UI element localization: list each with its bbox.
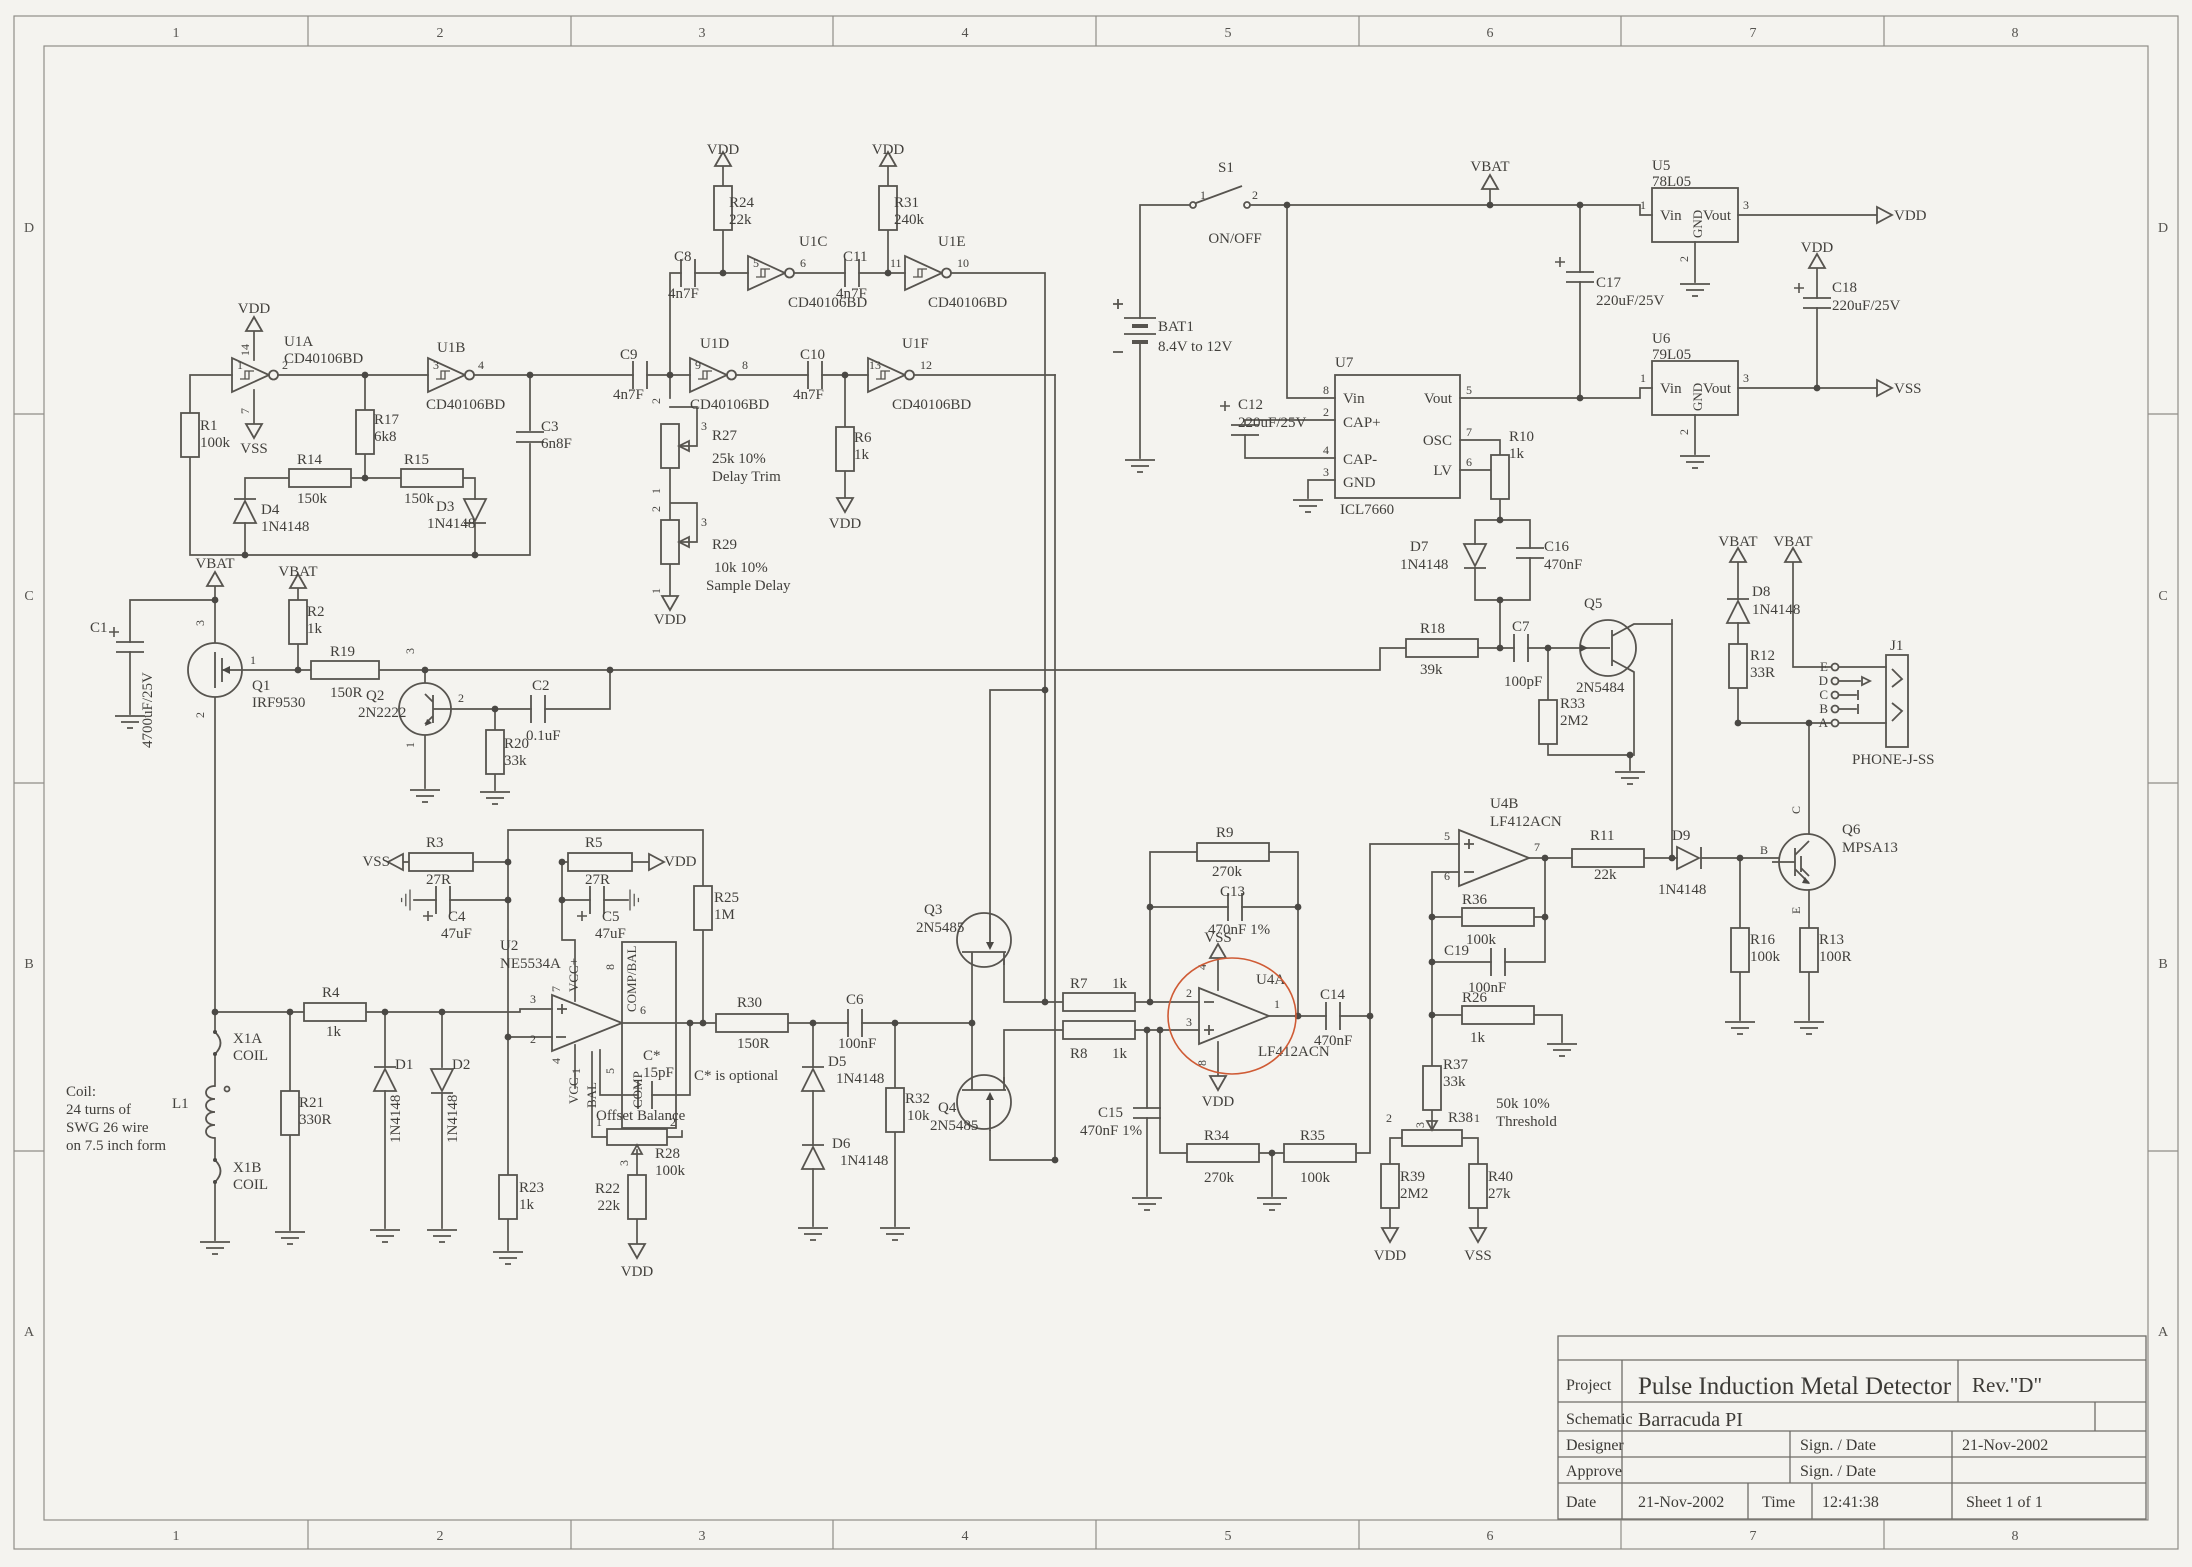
label-C16-val: 470nF: [1544, 557, 1582, 573]
label-U2-bal: BAL: [584, 1082, 599, 1108]
label-D3-ref: D3: [436, 499, 454, 515]
ground: [1125, 460, 1155, 472]
grid-row-right-C: C: [2158, 589, 2167, 604]
label-coil-note1: Coil:: [66, 1084, 96, 1100]
label-R30-ref: R30: [737, 995, 762, 1011]
transistor-Q1: [188, 643, 242, 697]
vss-arrow: [1210, 944, 1226, 958]
resistor-R15: [401, 469, 463, 487]
label-C19-ref: C19: [1444, 943, 1469, 959]
label-R2-ref: R2: [307, 604, 325, 620]
label-U2-vccminus: VCC-: [566, 1073, 581, 1104]
ground: [1680, 456, 1710, 468]
label-U7-capm: CAP-: [1343, 452, 1377, 468]
label-L1-ref: L1: [172, 1096, 189, 1112]
label-D3-val: 1N4148: [427, 516, 475, 532]
resistor-R21: [281, 1091, 299, 1135]
label-C11-val: 4n7F: [836, 286, 867, 302]
label-D7-val: 1N4148: [1400, 557, 1448, 573]
label-C9-val: 4n7F: [613, 387, 644, 403]
label-C1-val: 4700uF/25V: [140, 672, 156, 748]
label-D1-ref: D1: [395, 1057, 413, 1073]
label-R5-ref: R5: [585, 835, 603, 851]
label-J1-pinD: D: [1819, 673, 1828, 688]
label-U1E-pin11: 11: [890, 256, 902, 270]
ground: [1680, 284, 1710, 296]
vdd-arrow: [662, 596, 678, 610]
label-C7-ref: C7: [1512, 619, 1530, 635]
capacitor-C16: [1516, 548, 1544, 558]
label-R5-vdd: VDD: [664, 854, 697, 870]
plus-C4: [423, 911, 433, 921]
label-X1A-val: COIL: [233, 1048, 268, 1064]
capacitor-C7: [1514, 634, 1528, 662]
label-U1D-ref: U1D: [700, 336, 729, 352]
grid-col-top-5: 5: [1225, 26, 1232, 41]
capacitor-C6: [848, 1009, 862, 1037]
ground: [370, 1230, 400, 1242]
ground: [410, 790, 440, 802]
label-U5-val: 78L05: [1652, 174, 1691, 190]
label-C1-ref: C1: [90, 620, 108, 636]
ground: [1257, 1198, 1287, 1210]
resistor-R3: [409, 853, 473, 871]
grid-row-left-C: C: [24, 589, 33, 604]
label-R15-ref: R15: [404, 452, 429, 468]
label-R22-vdd: VDD: [621, 1264, 654, 1280]
battery-BAT1: [1113, 299, 1156, 352]
label-U1A-vss: VSS: [240, 441, 268, 457]
label-BAT1-val: 8.4V to 12V: [1158, 339, 1232, 355]
label-R23-ref: R23: [519, 1180, 544, 1196]
capacitor-C18: [1803, 298, 1831, 308]
label-D8-vbat: VBAT: [1718, 534, 1757, 550]
label-U6-pin2: 2: [1677, 429, 1691, 435]
label-R25-val: 1M: [714, 907, 735, 923]
vdd-arrow: [246, 317, 262, 331]
label-R33-val: 2M2: [1560, 713, 1588, 729]
label-Q2-pin2: 2: [458, 691, 464, 705]
resistor-R33: [1539, 700, 1557, 744]
label-D2-ref: D2: [452, 1057, 470, 1073]
grid-col-top-4: 4: [962, 26, 969, 41]
diode-D2: [431, 1069, 453, 1093]
designer-label: Designer: [1566, 1437, 1624, 1454]
label-coil-note2: 24 turns of: [66, 1102, 131, 1118]
label-U4A-pin3: 3: [1186, 1015, 1192, 1029]
grid-col-bottom-6: 6: [1487, 1529, 1494, 1544]
label-R17-val: 6k8: [374, 429, 397, 445]
label-U1F-val: CD40106BD: [892, 397, 971, 413]
grid-labels: 1122334455667788DDCCBBAA: [24, 26, 2169, 1544]
label-U1A-vdd: VDD: [238, 301, 271, 317]
label-R9-ref: R9: [1216, 825, 1234, 841]
resistor-R37: [1423, 1066, 1441, 1110]
label-R34-ref: R34: [1204, 1128, 1230, 1144]
capacitor-C10: [808, 361, 822, 389]
inductor-L1: [206, 1086, 230, 1138]
label-U5-pin2: 2: [1677, 256, 1691, 262]
label-C12-ref: C12: [1238, 397, 1263, 413]
label-D5-ref: D5: [828, 1054, 846, 1070]
label-U1C-ref: U1C: [799, 234, 827, 250]
label-C8-val: 4n7F: [668, 286, 699, 302]
label-U1D-pin8: 8: [742, 358, 748, 372]
resistor-R39: [1381, 1164, 1399, 1208]
label-R27-ref: R27: [712, 428, 738, 444]
label-R11-val: 22k: [1594, 867, 1617, 883]
label-U2-pin1: 1: [569, 1068, 583, 1074]
diode-D7: [1464, 544, 1486, 568]
label-U7-lv: LV: [1433, 463, 1452, 479]
wires-sampling: [813, 690, 1199, 1226]
label-R14-val: 150k: [297, 491, 328, 507]
label-U7-val: ICL7660: [1340, 502, 1394, 518]
resistor-R14: [289, 469, 351, 487]
label-U4A-vss: VSS: [1204, 930, 1232, 946]
vbat-arrow: [207, 572, 223, 586]
label-C12-val: 220uF/25V: [1238, 415, 1307, 431]
label-R5-val: 27R: [585, 872, 610, 888]
label-R19-ref: R19: [330, 644, 355, 660]
resistor-R34: [1187, 1144, 1259, 1162]
label-R31-val: 240k: [894, 212, 925, 228]
project-label: Project: [1566, 1377, 1612, 1394]
label-Q5-val: 2N5484: [1576, 680, 1625, 696]
label-C5-ref: C5: [602, 909, 620, 925]
resistor-R20: [486, 730, 504, 774]
label-U7-pin8: 8: [1323, 383, 1329, 397]
label-R8-val: 1k: [1112, 1046, 1128, 1062]
label-R16-val: 100k: [1750, 949, 1781, 965]
resistor-R1: [181, 413, 199, 457]
label-Q6-ref: Q6: [1842, 822, 1861, 838]
label-S1-pin2: 2: [1252, 188, 1258, 202]
grid-col-bottom-5: 5: [1225, 1529, 1232, 1544]
resistor-R8: [1063, 1021, 1135, 1039]
label-C11-ref: C11: [843, 249, 867, 265]
label-C16-ref: C16: [1544, 539, 1570, 555]
label-R2-vbat: VBAT: [278, 564, 317, 580]
label-D8-val: 1N4148: [1752, 602, 1800, 618]
label-R34-val: 270k: [1204, 1170, 1235, 1186]
vss-arrow: [246, 424, 262, 438]
label-U4A-pin1: 1: [1274, 997, 1280, 1011]
label-U2-pin6: 6: [640, 1003, 646, 1017]
label-Q1-pin2: 2: [193, 712, 207, 718]
resistor-R2: [289, 600, 307, 644]
label-Cstar-note: C* is optional: [694, 1068, 778, 1084]
label-R35-ref: R35: [1300, 1128, 1325, 1144]
capacitor-C17: [1566, 272, 1594, 282]
label-U5-vout: Vout: [1703, 208, 1732, 224]
label-D2-val: 1N4148: [445, 1095, 461, 1143]
label-R28-pin1: 1: [596, 1115, 602, 1129]
label-C10-val: 4n7F: [793, 387, 824, 403]
diode-D4: [234, 499, 256, 523]
label-U7-vout: Vout: [1424, 391, 1453, 407]
label-Q2-pin1: 1: [403, 742, 417, 748]
label-C7-val: 100pF: [1504, 674, 1542, 690]
capacitor-C9: [633, 361, 647, 389]
label-R10-ref: R10: [1509, 429, 1534, 445]
capacitor-C3: [516, 432, 544, 442]
grid-col-bottom-3: 3: [699, 1529, 706, 1544]
label-U5-vdd: VDD: [1894, 208, 1927, 224]
label-BAT1-ref: BAT1: [1158, 319, 1194, 335]
label-C18-vdd: VDD: [1801, 240, 1834, 256]
label-U2-pin4: 4: [549, 1058, 563, 1064]
label-U7-gnd: GND: [1343, 475, 1376, 491]
inverter-U1E: [905, 256, 951, 290]
label-D6-val: 1N4148: [840, 1153, 888, 1169]
grid-row-left-A: A: [24, 1325, 35, 1340]
label-U2-pin8: 8: [603, 964, 617, 970]
title-block: Project Pulse Induction Metal Detector R…: [1558, 1336, 2146, 1519]
resistor-R36: [1462, 908, 1534, 926]
label-C18-ref: C18: [1832, 280, 1857, 296]
label-U1B-ref: U1B: [437, 340, 465, 356]
ground: [1547, 1044, 1577, 1056]
label-R3-val: 27R: [426, 872, 451, 888]
label-R31-ref: R31: [894, 195, 919, 211]
label-R28-ref: R28: [655, 1146, 680, 1162]
label-C17-val: 220uF/25V: [1596, 293, 1665, 309]
label-J1-pinC: C: [1819, 687, 1828, 702]
vss-arrow: [1470, 1228, 1486, 1242]
label-R35-val: 100k: [1300, 1170, 1331, 1186]
label-R20-val: 33k: [504, 753, 527, 769]
label-R16-ref: R16: [1750, 932, 1776, 948]
label-S1-lbl: ON/OFF: [1208, 231, 1261, 247]
label-C5-val: 47uF: [595, 926, 626, 942]
trimmer-R27: [661, 424, 679, 468]
label-D6-ref: D6: [832, 1136, 851, 1152]
label-C2-ref: C2: [532, 678, 550, 694]
label-U1D-pin9: 9: [695, 358, 701, 372]
label-R7-ref: R7: [1070, 976, 1088, 992]
label-coil-note4: on 7.5 inch form: [66, 1138, 166, 1154]
label-R15-val: 150k: [404, 491, 435, 507]
label-R24-ref: R24: [729, 195, 755, 211]
label-U1C-pin5: 5: [753, 256, 759, 270]
label-U2-ref: U2: [500, 938, 518, 954]
label-U1F-pin13: 13: [869, 358, 881, 372]
vbat-arrow: [1730, 548, 1746, 562]
label-R40-val: 27k: [1488, 1186, 1511, 1202]
grid-col-top-8: 8: [2012, 26, 2019, 41]
grid-row-left-B: B: [24, 957, 33, 972]
label-X1B-val: COIL: [233, 1177, 268, 1193]
capacitor-C19: [1491, 948, 1505, 976]
vss-arrow: [1877, 380, 1892, 396]
resistor-R35: [1284, 1144, 1356, 1162]
vdd-arrow: [1809, 254, 1825, 268]
label-U4A-pin2: 2: [1186, 986, 1192, 1000]
label-R18-val: 39k: [1420, 662, 1443, 678]
label-R13-val: 100R: [1819, 949, 1852, 965]
label-R6-vdd: VDD: [829, 516, 862, 532]
resistor-R13: [1800, 928, 1818, 972]
ground: [1615, 772, 1645, 784]
label-D5-val: 1N4148: [836, 1071, 884, 1087]
label-R22-val: 22k: [598, 1198, 621, 1214]
label-J1-pinA: A: [1819, 715, 1829, 730]
label-R3-vss: VSS: [362, 854, 390, 870]
label-R23-val: 1k: [519, 1197, 535, 1213]
label-U7-pin4: 4: [1323, 443, 1329, 457]
schematic-label: Schematic: [1566, 1411, 1633, 1428]
label-U4B-val: LF412ACN: [1490, 814, 1562, 830]
label-R31-vdd: VDD: [872, 142, 905, 158]
label-U7-vin: Vin: [1343, 391, 1365, 407]
label-Q3-val: 2N5485: [916, 920, 964, 936]
border-frame: 1122334455667788DDCCBBAA: [14, 16, 2178, 1549]
switch-S1: [1190, 186, 1250, 208]
transistor-Q5: [1580, 620, 1636, 676]
resistor-R22: [628, 1175, 646, 1219]
label-Q6-pinE: E: [1789, 907, 1803, 914]
grid-row-right-D: D: [2158, 221, 2168, 236]
label-U7-ref: U7: [1335, 355, 1354, 371]
plus-C12: [1220, 401, 1230, 411]
label-R38-val: 50k 10%: [1496, 1096, 1550, 1112]
label-Q1-pin3: 3: [193, 620, 207, 626]
transistor-Q2: [399, 683, 451, 735]
grid-col-top-2: 2: [437, 26, 444, 41]
time-value: 12:41:38: [1822, 1494, 1879, 1511]
label-U1A-pin14: 14: [238, 344, 252, 356]
resistor-R12: [1729, 644, 1747, 688]
label-Q6-val: MPSA13: [1842, 840, 1898, 856]
label-C3-ref: C3: [541, 419, 559, 435]
resistor-R40: [1469, 1164, 1487, 1208]
diode-D9: [1677, 847, 1701, 869]
label-R27-pin3: 3: [701, 419, 707, 433]
sheet-info: Sheet 1 of 1: [1966, 1494, 2043, 1511]
label-U6-val: 79L05: [1652, 347, 1691, 363]
label-R8-ref: R8: [1070, 1046, 1088, 1062]
label-C17-ref: C17: [1596, 275, 1622, 291]
label-U2-pin3: 3: [530, 992, 536, 1006]
label-R39-ref: R39: [1400, 1169, 1425, 1185]
trimmer-R28: [607, 1129, 667, 1145]
resistor-R32: [886, 1088, 904, 1132]
label-U1A-pin1: 1: [237, 358, 243, 372]
label-C2-val: 0.1uF: [526, 728, 561, 744]
label-Q4-ref: Q4: [938, 1100, 957, 1116]
label-U1C-pin6: 6: [800, 256, 806, 270]
label-R24-vdd: VDD: [707, 142, 740, 158]
label-Q2-ref: Q2: [366, 688, 384, 704]
label-R28-pin3: 3: [617, 1160, 631, 1166]
ground: [275, 1232, 305, 1244]
grid-row-right-A: A: [2158, 1325, 2169, 1340]
ground-small: [630, 890, 638, 911]
schematic-name: Barracuda PI: [1638, 1409, 1743, 1431]
revision: Rev."D": [1972, 1373, 2042, 1397]
label-U4B-pin6: 6: [1444, 869, 1450, 883]
plus-C5: [577, 911, 587, 921]
label-U6-vout: Vout: [1703, 381, 1732, 397]
label-R21-ref: R21: [299, 1095, 324, 1111]
label-C15-ref: C15: [1098, 1105, 1123, 1121]
label-R1-val: 100k: [200, 435, 231, 451]
label-R12-ref: R12: [1750, 648, 1775, 664]
label-R26-val: 1k: [1470, 1030, 1486, 1046]
schematic-canvas: 1122334455667788DDCCBBAA: [0, 0, 2192, 1567]
ground: [1293, 500, 1323, 512]
label-C13-ref: C13: [1220, 884, 1245, 900]
label-D7-ref: D7: [1410, 539, 1429, 555]
opamp-U4B-polarity: [1464, 839, 1474, 872]
label-Q3-ref: Q3: [924, 902, 942, 918]
resistor-R10: [1491, 455, 1509, 499]
label-C8-ref: C8: [674, 249, 692, 265]
label-C9-ref: C9: [620, 347, 638, 363]
label-R38-ref: R38: [1448, 1110, 1473, 1126]
label-R21-val: 330R: [299, 1112, 332, 1128]
label-Q6-pinC: C: [1789, 806, 1803, 814]
label-R1-ref: R1: [200, 418, 218, 434]
vdd-arrow: [837, 498, 853, 512]
label-U1F-ref: U1F: [902, 336, 929, 352]
ground-small: [402, 890, 410, 911]
label-R29-lbl: Sample Delay: [706, 578, 791, 594]
grid-col-top-7: 7: [1750, 26, 1757, 41]
label-R38-pin3: 3: [1413, 1122, 1427, 1128]
label-R28-pin2: 2: [670, 1115, 676, 1129]
label-U4A-ref: U4A: [1256, 972, 1285, 988]
resistor-R23: [499, 1175, 517, 1219]
label-J1-pinE: E: [1820, 659, 1828, 674]
resistor-R18: [1406, 639, 1478, 657]
label-U1B-pin3: 3: [433, 358, 439, 372]
label-U7-pin6: 6: [1466, 455, 1472, 469]
label-U1F-pin12: 12: [920, 358, 932, 372]
label-R39-val: 2M2: [1400, 1186, 1428, 1202]
opamp-U2: [552, 995, 622, 1051]
label-U1D-val: CD40106BD: [690, 397, 769, 413]
label-R25-ref: R25: [714, 890, 739, 906]
label-U1A-pin7: 7: [238, 408, 252, 414]
label-R38-pin1: 1: [1474, 1111, 1480, 1125]
label-coil-note3: SWG 26 wire: [66, 1120, 149, 1136]
label-R14-ref: R14: [297, 452, 323, 468]
label-R38-pin2: 2: [1386, 1111, 1392, 1125]
grid-col-top-3: 3: [699, 26, 706, 41]
label-Cstar-ref: C*: [643, 1048, 661, 1064]
ground: [880, 1228, 910, 1240]
label-U7-pin3: 3: [1323, 465, 1329, 479]
label-U1A-val: CD40106BD: [284, 351, 363, 367]
label-R36-val: 100k: [1466, 932, 1497, 948]
label-R7-val: 1k: [1112, 976, 1128, 992]
label-R37-ref: R37: [1443, 1057, 1469, 1073]
label-U1E-pin10: 10: [957, 256, 969, 270]
label-R40-vss: VSS: [1464, 1248, 1492, 1264]
sign-date-label-1: Sign. / Date: [1800, 1437, 1876, 1454]
label-R28-val: 100k: [655, 1163, 686, 1179]
label-J1-pinB: B: [1819, 701, 1828, 716]
grid-col-bottom-4: 4: [962, 1529, 969, 1544]
transistor-Q3: [957, 913, 1011, 967]
vdd-arrow: [1210, 1076, 1226, 1090]
label-Q4-val: 2N5485: [930, 1118, 978, 1134]
opamp-U4B: [1459, 830, 1529, 886]
label-U5-pin3: 3: [1743, 198, 1749, 212]
label-U7-pin2: 2: [1323, 405, 1329, 419]
